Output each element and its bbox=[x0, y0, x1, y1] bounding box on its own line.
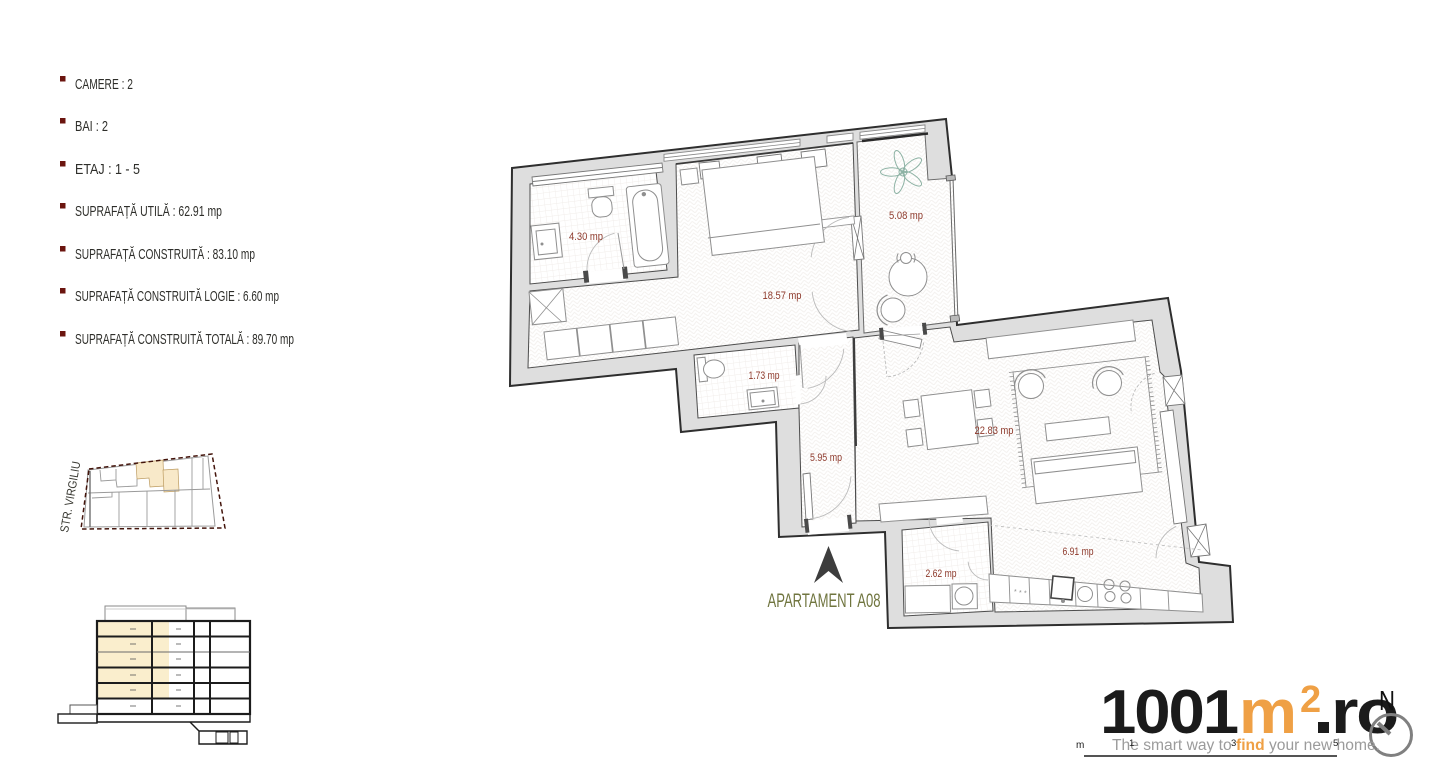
svg-text:4.30 mp: 4.30 mp bbox=[569, 231, 603, 243]
svg-text:ETAJ : 1 - 5: ETAJ : 1 - 5 bbox=[75, 161, 140, 178]
svg-text:2: 2 bbox=[1300, 679, 1321, 721]
svg-text:18.57 mp: 18.57 mp bbox=[763, 290, 802, 302]
svg-text:SUPRAFAȚĂ CONSTRUITĂ : 83.10: SUPRAFAȚĂ CONSTRUITĂ : 83.10 mp bbox=[75, 246, 255, 263]
svg-text:SUPRAFAȚĂ CONSTRUITĂ LOGIE : 6: SUPRAFAȚĂ CONSTRUITĂ LOGIE : 6.60 mp bbox=[75, 288, 279, 305]
svg-text:CAMERE : 2: CAMERE : 2 bbox=[75, 76, 133, 93]
svg-text:5.95 mp: 5.95 mp bbox=[810, 452, 842, 464]
svg-text:SUPRAFAȚĂ UTILĂ : 62.91 mp: SUPRAFAȚĂ UTILĂ : 62.91 mp bbox=[75, 203, 222, 220]
svg-text:22.83 mp: 22.83 mp bbox=[975, 425, 1014, 437]
svg-text:2.62 mp: 2.62 mp bbox=[926, 568, 957, 580]
svg-text:The smart way to find your new: The smart way to find your new home. bbox=[1112, 737, 1380, 754]
svg-text:1: 1 bbox=[1129, 738, 1134, 749]
svg-text:*: * bbox=[1014, 589, 1017, 596]
svg-text:1.73 mp: 1.73 mp bbox=[749, 370, 780, 382]
svg-text:5.08 mp: 5.08 mp bbox=[889, 210, 923, 222]
svg-text:5: 5 bbox=[1333, 738, 1338, 749]
svg-text:*: * bbox=[1024, 591, 1027, 598]
svg-text:3: 3 bbox=[1231, 738, 1236, 749]
svg-text:*: * bbox=[1019, 590, 1022, 597]
svg-text:BAI : 2: BAI : 2 bbox=[75, 118, 108, 135]
svg-text:APARTAMENT A08: APARTAMENT A08 bbox=[768, 591, 881, 612]
svg-text:N: N bbox=[1379, 685, 1395, 716]
svg-text:6.91 mp: 6.91 mp bbox=[1063, 546, 1094, 558]
svg-text:m: m bbox=[1076, 740, 1084, 751]
svg-text:SUPRAFAȚĂ CONSTRUITĂ TOTALĂ :: SUPRAFAȚĂ CONSTRUITĂ TOTALĂ : 89.70 mp bbox=[75, 331, 294, 348]
